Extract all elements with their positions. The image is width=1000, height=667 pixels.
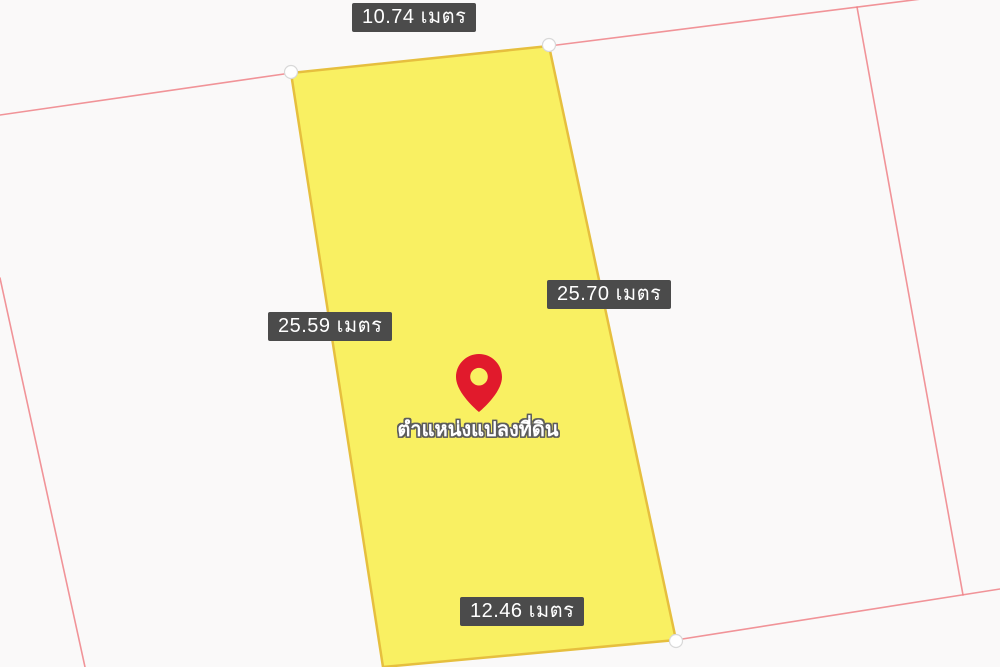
neighbor-boundary-line bbox=[549, 0, 945, 46]
dimension-label-bottom: 12.46 เมตร bbox=[460, 597, 584, 626]
cadastral-map[interactable]: 10.74 เมตร 25.70 เมตร 25.59 เมตร 12.46 เ… bbox=[0, 0, 1000, 667]
neighbor-boundary-line bbox=[857, 7, 963, 595]
location-pin-shape bbox=[456, 354, 502, 412]
parcel-vertex-marker[interactable] bbox=[670, 635, 683, 648]
dimension-label-right: 25.70 เมตร bbox=[547, 280, 671, 309]
neighbor-boundary-line bbox=[0, 278, 85, 667]
parcel-vertex-marker[interactable] bbox=[543, 39, 556, 52]
dimension-label-left: 25.59 เมตร bbox=[268, 312, 392, 341]
neighbor-boundary-line bbox=[676, 589, 1000, 640]
neighbor-boundary-line bbox=[0, 73, 291, 115]
location-pin-icon[interactable] bbox=[456, 354, 502, 412]
pin-caption: ตำแหน่งแปลงที่ดิน bbox=[397, 413, 558, 445]
dimension-label-top: 10.74 เมตร bbox=[352, 3, 476, 32]
parcel-map-layer bbox=[0, 0, 1000, 667]
parcel-vertex-marker[interactable] bbox=[285, 66, 298, 79]
